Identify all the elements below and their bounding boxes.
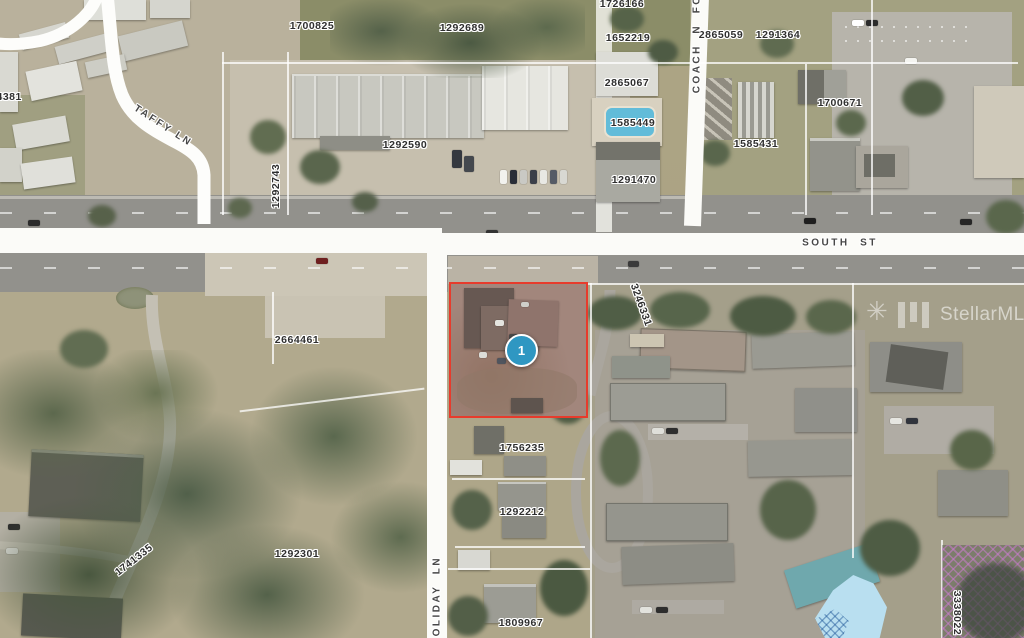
parcel-label-1291470: 1291470: [612, 174, 656, 186]
parcel-label-1292301: 1292301: [275, 548, 319, 560]
listing-marker-label: 1: [518, 343, 525, 358]
parcel-line: [871, 0, 873, 215]
parcel-line: [852, 283, 854, 558]
road-south-st-band-east: [440, 233, 1024, 255]
parcel-label-1292212: 1292212: [500, 506, 544, 518]
stellar-logo-bar: [910, 302, 917, 322]
dark-tree-mass: [956, 563, 1024, 638]
road-south-st-band-west: [0, 228, 442, 253]
parcel-line: [448, 568, 590, 570]
car: [497, 358, 506, 364]
parcel-line: [222, 62, 1018, 64]
parcel-line: [455, 546, 585, 548]
listing-marker-1[interactable]: 1: [505, 334, 538, 367]
parcel-line: [805, 64, 807, 215]
parcel-label-1291364: 1291364: [756, 29, 800, 41]
parcel-label-1652219: 1652219: [606, 32, 650, 44]
parcel-label-1756235: 1756235: [500, 442, 544, 454]
parcel-label-1700671: 1700671: [818, 97, 862, 109]
parcel-line: [272, 292, 274, 364]
car: [479, 352, 487, 358]
parcel-label-1292689: 1292689: [440, 22, 484, 34]
aerial-parcel-map: 1700825129268917261661652219286505912913…: [0, 0, 1024, 638]
parcel-label-1809967: 1809967: [499, 617, 543, 629]
parcel-label-74381: 74381: [0, 91, 22, 103]
shed: [511, 398, 543, 413]
parcel-line: [222, 52, 224, 215]
watermark-text: StellarMLS: [940, 304, 1024, 326]
street-label-holiday-ln: HOLIDAY LN: [432, 556, 443, 638]
parcel-line: [588, 283, 1024, 285]
parcel-label-1726166: 1726166: [600, 0, 644, 10]
parcel-label-1700825: 1700825: [290, 20, 334, 32]
parcel-label-1585431: 1585431: [734, 138, 778, 150]
car: [495, 320, 504, 326]
parcel-label-1292590: 1292590: [383, 139, 427, 151]
parcel-line: [287, 52, 289, 215]
street-label-coach-n-fou: COACH N FOU: [692, 0, 703, 93]
parcel-line: [590, 283, 592, 638]
parcel-label-2865067: 2865067: [605, 77, 649, 89]
parcel-label-2664461: 2664461: [275, 334, 319, 346]
parcel-label-2865059: 2865059: [699, 29, 743, 41]
parcel-label-1585449: 1585449: [611, 117, 655, 129]
parcel-label-3338022: 3338022: [951, 591, 963, 635]
parcel-line: [452, 478, 585, 480]
street-label-south-st: SOUTH ST: [802, 238, 878, 249]
stellar-logo-bar: [922, 302, 929, 328]
stellar-logo-bar: [898, 302, 905, 328]
parcel-label-1292743: 1292743: [270, 164, 282, 208]
stellar-logo-icon: ✳: [866, 296, 888, 327]
car: [521, 302, 529, 307]
